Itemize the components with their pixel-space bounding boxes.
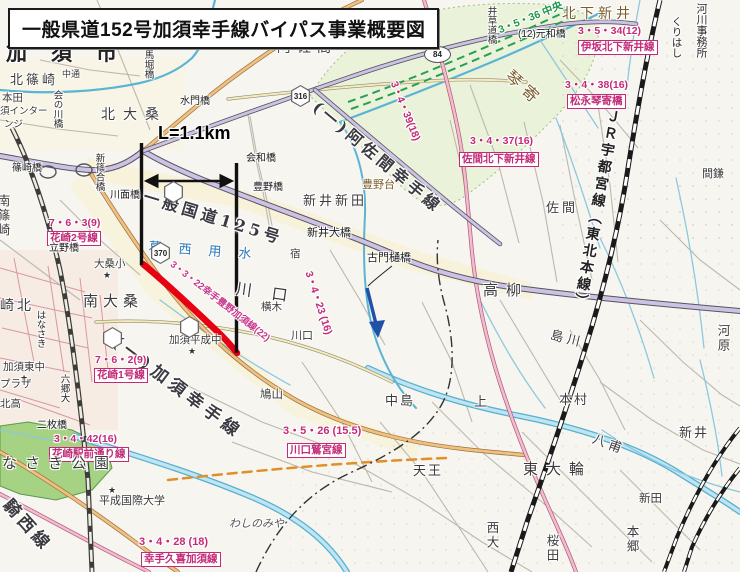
map-label: 7・6・3(9) <box>49 218 100 229</box>
map-label: 3・4・38(16) <box>565 80 628 91</box>
kazo-satte-line-label: (一)加須幸手線 <box>109 334 245 443</box>
map-label: 加須平成中 <box>169 335 222 346</box>
map-label: 3・5・34(12) <box>578 26 641 37</box>
map-label: 古門樋橋 <box>367 253 411 264</box>
map-label: 南篠崎 <box>0 194 9 238</box>
map-label: 横木 <box>261 302 282 313</box>
map-label: 新田 <box>639 494 662 506</box>
map-label: 川面橋 <box>110 191 140 201</box>
map-label: 花崎1号線 <box>94 368 148 383</box>
map-label: 幸手久喜加須線 <box>141 552 221 567</box>
map-label: 3・4・23 (16) <box>303 270 333 336</box>
map-label: 八甫 <box>591 433 627 457</box>
map-label: ンジ <box>4 120 23 130</box>
length-annotation: L=1.1km <box>158 124 231 142</box>
map-label: 天王 <box>413 465 443 478</box>
map-label: 本村 <box>559 394 589 407</box>
map-label: 二枚橋 <box>37 421 67 431</box>
map-label: 篠崎橋 <box>12 164 42 174</box>
map-label: ★ <box>188 347 196 356</box>
map-label: 上 <box>474 396 487 409</box>
map-label: わしのみや <box>229 519 284 530</box>
map-label: 井草道橋 <box>486 6 496 44</box>
map-label: (12)元和橋 <box>518 30 566 40</box>
jr-utsunomiya-line-label: ＪＲ宇都宮線（東北本線） <box>573 108 622 311</box>
map-label: 宿 <box>290 249 301 260</box>
map-label: 3・4・37(16) <box>470 136 533 147</box>
map-label: 北大桑 <box>101 108 167 122</box>
map-label: 琴寄 <box>502 68 545 109</box>
map-label: 崎北 <box>0 299 34 313</box>
map-label: ★ <box>108 486 116 495</box>
map-label: 鳩山 <box>260 390 283 402</box>
map-label: 本郷 <box>625 525 638 554</box>
map-label: 河川事務所 <box>695 3 706 58</box>
map-label: 加須東中 <box>3 362 45 373</box>
map-label: なさき公園 <box>2 456 117 471</box>
kisai-line-label: 騎西線 <box>0 497 54 555</box>
map-label: 佐間北下新井線 <box>459 152 539 167</box>
map-label: 3・4・42(16) <box>54 434 117 445</box>
map-label: 中島 <box>385 395 415 408</box>
map-label: 新井新田 <box>303 195 367 208</box>
map-label: 新篠合橋 <box>94 153 104 191</box>
map-label: 西大 <box>485 521 498 550</box>
map-label: 須インター <box>0 107 48 117</box>
map-label: 桜田 <box>545 534 558 563</box>
map-label: 佐間 <box>546 202 578 215</box>
route-shield-316: 316 <box>291 85 310 107</box>
map-title-box: 一般県道152号加須幸手線バイパス事業概要図 <box>8 8 439 49</box>
map-label: 川口鷲宮線 <box>287 443 346 458</box>
map-label: 7・6・2(9) <box>95 355 146 366</box>
route125-label: 一般国道125号 <box>141 189 285 247</box>
map-label: 六郷大 <box>59 374 69 403</box>
map-label: 島川 <box>549 329 585 350</box>
map-label: 3・5・26 (15.5) <box>283 426 361 437</box>
map-label: ★ <box>103 271 111 280</box>
map-label: 河原 <box>716 324 729 353</box>
map-label: 馬堀橋 <box>143 50 153 79</box>
map-label: はなさき <box>35 310 45 348</box>
map-title: 一般県道152号加須幸手線バイパス事業概要図 <box>22 20 425 41</box>
map-label: 東大輪 <box>523 462 592 477</box>
map-label: 3・4・39(18) <box>388 80 421 142</box>
map-label: 会和橋 <box>246 154 276 164</box>
map-label: 立野橋 <box>49 244 79 254</box>
map-label: 高柳 <box>483 283 529 298</box>
map-label: 間鎌 <box>702 169 724 180</box>
map-label: 大桑小 <box>94 259 126 270</box>
map-label: 中通 <box>62 70 80 79</box>
map-label: 北高 <box>0 399 21 410</box>
map-label: 新井 <box>679 427 709 440</box>
map-label: くりはし <box>671 16 682 58</box>
map-labels: 加須市北篠崎中通本田須インターンジ会の川橋馬堀橋水門橋北大桑阿佐間井草道橋北下新… <box>0 0 740 572</box>
map-label: 新井大橋 <box>307 228 351 239</box>
map-label: 豊野橋 <box>253 183 283 193</box>
map-label: 川口 <box>291 331 313 342</box>
map-label: 北篠崎 <box>10 74 58 87</box>
map-label: 3・4・28 (18) <box>139 537 208 548</box>
map-label: 会の川橋 <box>52 90 62 128</box>
map-label: 平成国際大学 <box>99 496 165 507</box>
map-label: 本田 <box>2 93 23 104</box>
map-label: 豊野台 <box>362 179 395 190</box>
map-label: 南大桑 <box>83 294 143 309</box>
map-canvas: 加須市北篠崎中通本田須インターンジ会の川橋馬堀橋水門橋北大桑阿佐間井草道橋北下新… <box>0 0 740 572</box>
map-label: 松永琴寄橋 <box>567 94 626 109</box>
map-label: 伊坂北下新井線 <box>578 40 658 55</box>
map-label: 水門橋 <box>180 97 210 107</box>
map-label: 北下新井 <box>562 7 634 21</box>
map-label: プラザ <box>0 379 32 390</box>
